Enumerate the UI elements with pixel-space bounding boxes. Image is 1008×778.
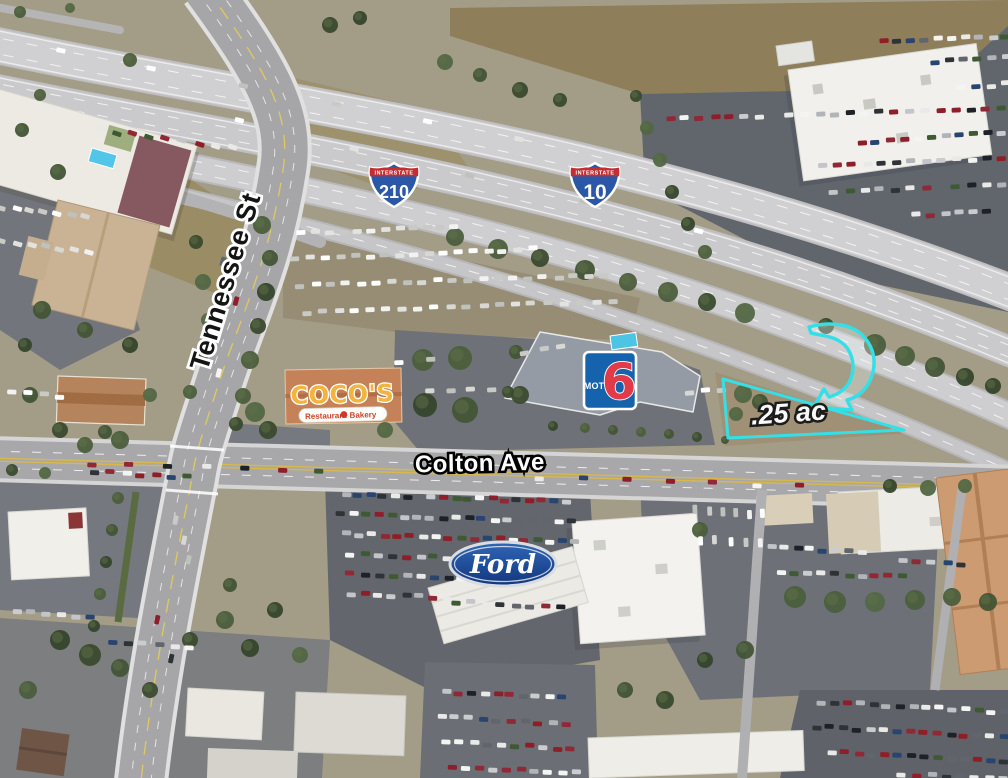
cocos-tagline-right: Bakery [349,410,376,420]
shield-banner-text: INTERSTATE [374,170,413,176]
ford-script: Ford [469,550,536,580]
aerial-photo: Tennessee St Colton Ave .25 ac INTERSTAT… [0,0,1008,778]
shield-banner-text: INTERSTATE [575,170,614,176]
annotation-overlay: Tennessee St Colton Ave .25 ac INTERSTAT… [0,0,1008,778]
motel6-digit: 6 [602,353,637,411]
acreage-label: .25 ac [750,395,827,430]
highway-shield-i10: INTERSTATE 10 [570,163,620,207]
logo-motel6: MOTEL 6 [584,352,637,411]
logo-cocos: COCO'S Restaurant Bakery [290,379,395,423]
shield-number: 210 [379,182,409,202]
logo-ford: Ford [450,542,556,586]
cocos-wordmark: COCO'S [290,379,394,410]
shield-number: 10 [583,181,606,204]
street-label-tennessee: Tennessee St [184,189,267,374]
highway-shield-i210: INTERSTATE 210 [369,163,419,207]
street-label-colton: Colton Ave [415,449,545,479]
